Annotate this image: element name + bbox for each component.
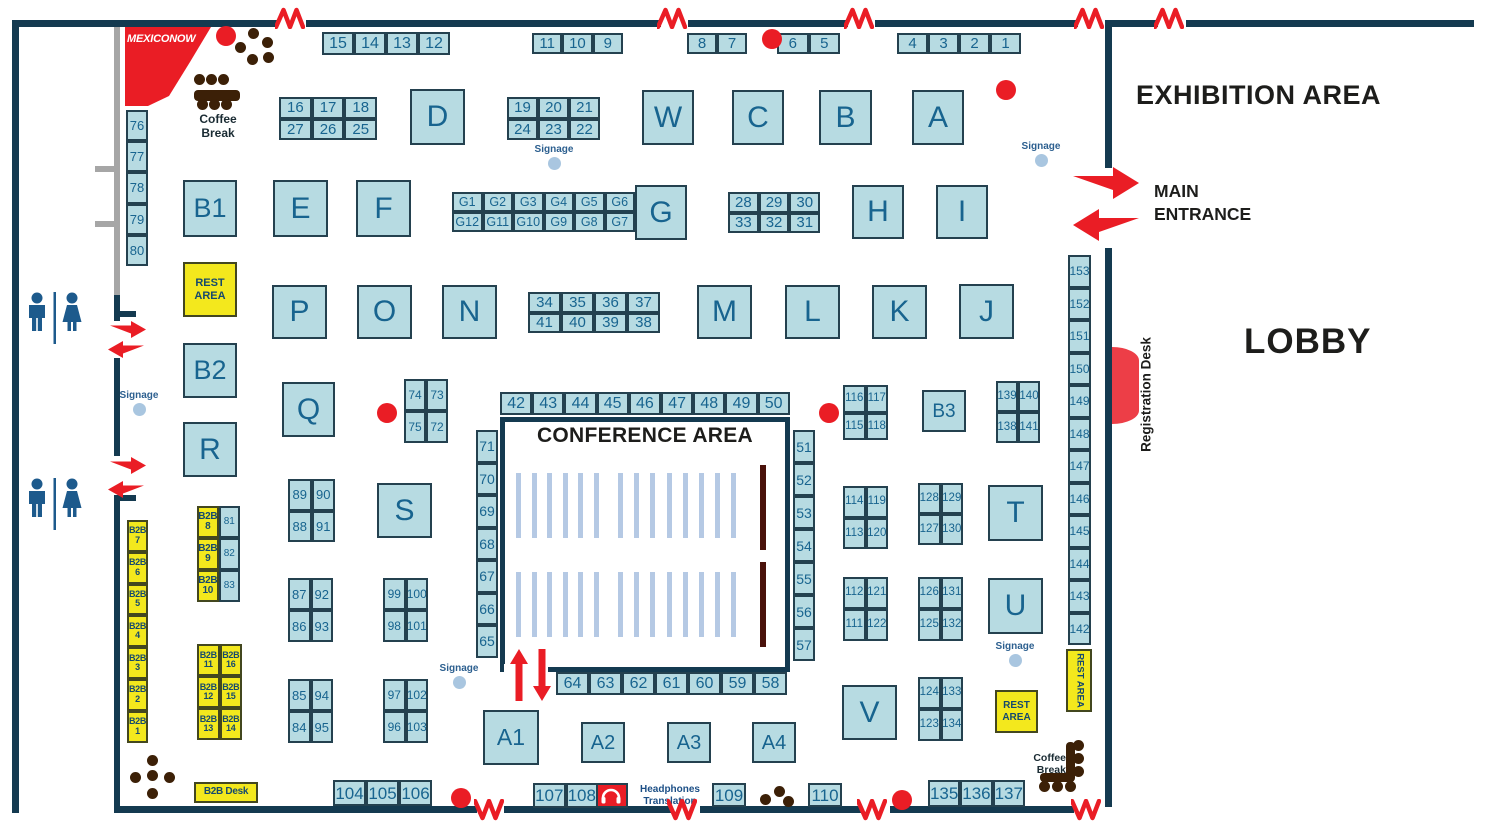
signage-text: Signage bbox=[440, 663, 479, 674]
registration-desk bbox=[1112, 347, 1139, 424]
booth-57[interactable]: 57 bbox=[793, 628, 815, 661]
b2b-desk[interactable]: B2B Desk bbox=[194, 782, 258, 803]
booth-52[interactable]: 52 bbox=[793, 463, 815, 496]
booth-L[interactable]: L bbox=[785, 285, 840, 339]
wall-segment bbox=[114, 295, 120, 321]
booth-A1[interactable]: A1 bbox=[483, 710, 539, 765]
wall-segment bbox=[1186, 20, 1474, 27]
booth-150[interactable]: 150 bbox=[1068, 353, 1091, 386]
coffee-dot bbox=[218, 74, 229, 85]
booth-Q[interactable]: Q bbox=[282, 382, 335, 437]
booth-127[interactable]: 127 bbox=[918, 514, 941, 545]
booth-124[interactable]: 124 bbox=[918, 677, 941, 709]
booth-111[interactable]: 111 bbox=[843, 609, 866, 641]
booth-19[interactable]: 19 bbox=[507, 97, 538, 119]
seat-row-bar bbox=[532, 572, 537, 637]
booth-141[interactable]: 141 bbox=[1018, 412, 1040, 443]
coffee-dot bbox=[194, 74, 205, 85]
booth-34[interactable]: 34 bbox=[528, 292, 561, 313]
booth-92[interactable]: 92 bbox=[311, 578, 334, 610]
booth-39[interactable]: 39 bbox=[594, 313, 627, 334]
booth-14[interactable]: 14 bbox=[354, 32, 386, 55]
booth-27[interactable]: 27 bbox=[279, 119, 312, 141]
wall-segment bbox=[875, 20, 1078, 27]
out-arrow-icon bbox=[108, 341, 144, 363]
booth-G10[interactable]: G10 bbox=[513, 212, 544, 232]
mexiconow-logo-text: MEXICONOW bbox=[127, 33, 209, 45]
coffee-dot bbox=[235, 42, 246, 53]
booth-70[interactable]: 70 bbox=[476, 463, 498, 496]
booth-98[interactable]: 98 bbox=[383, 610, 406, 642]
coffee-dot bbox=[206, 74, 217, 85]
signage-marker: Signage bbox=[992, 641, 1038, 667]
booth-84[interactable]: 84 bbox=[288, 711, 311, 743]
booth-108[interactable]: 108 bbox=[566, 783, 599, 808]
seat-row-bar bbox=[532, 473, 537, 538]
wall-break-icon bbox=[857, 799, 887, 825]
booth-11[interactable]: 11 bbox=[532, 33, 562, 54]
restroom-icon bbox=[24, 476, 86, 537]
booth-48[interactable]: 48 bbox=[693, 392, 725, 415]
booth-83[interactable]: 83 bbox=[219, 570, 241, 602]
in-arrow-icon bbox=[110, 321, 146, 343]
signage-dot bbox=[1035, 154, 1048, 167]
booth-35[interactable]: 35 bbox=[561, 292, 594, 313]
booth-V[interactable]: V bbox=[842, 685, 897, 740]
booth-B2B-9[interactable]: B2B 9 bbox=[197, 538, 219, 570]
booth-H[interactable]: H bbox=[852, 185, 904, 239]
booth-75[interactable]: 75 bbox=[404, 411, 426, 443]
booth-81[interactable]: 81 bbox=[219, 506, 241, 538]
seat-row-bar bbox=[650, 572, 655, 637]
booth-8[interactable]: 8 bbox=[687, 33, 717, 54]
booth-116[interactable]: 116 bbox=[843, 385, 866, 413]
booth-G9[interactable]: G9 bbox=[544, 212, 575, 232]
booth-G5[interactable]: G5 bbox=[574, 192, 605, 212]
booth-120[interactable]: 120 bbox=[866, 518, 889, 550]
booth-28[interactable]: 28 bbox=[728, 192, 759, 213]
seat-row-bar bbox=[516, 473, 521, 538]
booth-G3[interactable]: G3 bbox=[513, 192, 544, 212]
booth-F[interactable]: F bbox=[356, 180, 411, 237]
booth-D[interactable]: D bbox=[410, 89, 465, 145]
corridor-line bbox=[95, 166, 115, 172]
booth-23[interactable]: 23 bbox=[538, 119, 569, 141]
seat-row-bar bbox=[699, 572, 704, 637]
booth-45[interactable]: 45 bbox=[597, 392, 629, 415]
booth-15[interactable]: 15 bbox=[322, 32, 354, 55]
booth-100[interactable]: 100 bbox=[406, 578, 429, 610]
booth-88[interactable]: 88 bbox=[288, 511, 312, 543]
signage-text: Signage bbox=[535, 144, 574, 155]
booth-32[interactable]: 32 bbox=[759, 213, 790, 234]
booth-B2B-3[interactable]: B2B 3 bbox=[127, 647, 148, 679]
booth-A4[interactable]: A4 bbox=[752, 722, 796, 763]
booth-A[interactable]: A bbox=[912, 90, 964, 145]
coffee-dot bbox=[1073, 753, 1084, 764]
booth-44[interactable]: 44 bbox=[564, 392, 596, 415]
booth-B2B-6[interactable]: B2B 6 bbox=[127, 552, 148, 584]
booth-43[interactable]: 43 bbox=[532, 392, 564, 415]
booth-B2B-7[interactable]: B2B 7 bbox=[127, 520, 148, 552]
booth-37[interactable]: 37 bbox=[627, 292, 660, 313]
booth-85[interactable]: 85 bbox=[288, 679, 311, 711]
coffee-dot bbox=[262, 37, 273, 48]
booth-G2[interactable]: G2 bbox=[483, 192, 514, 212]
booth-62[interactable]: 62 bbox=[622, 672, 655, 695]
seat-row-bar bbox=[547, 572, 552, 637]
booth-C[interactable]: C bbox=[732, 90, 784, 145]
entrance-out-arrow-icon bbox=[1073, 209, 1139, 246]
booth-A2[interactable]: A2 bbox=[581, 722, 625, 763]
booth-105[interactable]: 105 bbox=[366, 780, 399, 806]
booth-82[interactable]: 82 bbox=[219, 538, 241, 570]
booth-102[interactable]: 102 bbox=[406, 679, 429, 711]
booth-N[interactable]: N bbox=[442, 285, 497, 339]
booth-133[interactable]: 133 bbox=[941, 677, 964, 709]
wall-segment bbox=[890, 806, 1074, 813]
booth-10[interactable]: 10 bbox=[562, 33, 592, 54]
lobby-label: LOBBY bbox=[1244, 322, 1372, 362]
booth-49[interactable]: 49 bbox=[725, 392, 757, 415]
wall-segment bbox=[114, 806, 477, 813]
coffee-dot bbox=[197, 99, 208, 110]
seat-row-bar bbox=[650, 473, 655, 538]
booth-104[interactable]: 104 bbox=[333, 780, 366, 806]
booth-5[interactable]: 5 bbox=[809, 33, 841, 54]
booth-107[interactable]: 107 bbox=[533, 783, 566, 808]
booth-147[interactable]: 147 bbox=[1068, 450, 1091, 483]
coffee-dot bbox=[164, 772, 175, 783]
booth-118[interactable]: 118 bbox=[866, 413, 889, 441]
booth-117[interactable]: 117 bbox=[866, 385, 889, 413]
coffee-dot bbox=[1039, 781, 1050, 792]
booth-M[interactable]: M bbox=[697, 285, 752, 339]
booth-B[interactable]: B bbox=[819, 90, 872, 145]
seat-row-bar bbox=[594, 473, 599, 538]
booth-P[interactable]: P bbox=[272, 285, 327, 339]
booth-B1[interactable]: B1 bbox=[183, 180, 237, 237]
headphones-cell bbox=[594, 783, 628, 808]
booth-7[interactable]: 7 bbox=[717, 33, 747, 54]
wall-break-icon bbox=[667, 799, 697, 825]
booth-69[interactable]: 69 bbox=[476, 495, 498, 528]
signage-text: Signage bbox=[1022, 141, 1061, 152]
rest-area-vertical-label: REST AREA bbox=[1074, 653, 1085, 708]
wall-segment bbox=[114, 495, 120, 813]
booth-B2B-8[interactable]: B2B 8 bbox=[197, 506, 219, 538]
booth-4[interactable]: 4 bbox=[897, 33, 928, 54]
booth-12[interactable]: 12 bbox=[418, 32, 450, 55]
seat-row-bar bbox=[715, 473, 720, 538]
booth-153[interactable]: 153 bbox=[1068, 255, 1091, 288]
booth-106[interactable]: 106 bbox=[399, 780, 432, 806]
booth-G[interactable]: G bbox=[635, 185, 687, 240]
booth-E[interactable]: E bbox=[273, 180, 328, 237]
booth-B3[interactable]: B3 bbox=[922, 390, 966, 432]
booth-50[interactable]: 50 bbox=[758, 392, 790, 415]
booth-129[interactable]: 129 bbox=[941, 483, 964, 514]
red-dot-marker bbox=[377, 403, 397, 423]
booth-148[interactable]: 148 bbox=[1068, 418, 1091, 451]
booth-132[interactable]: 132 bbox=[941, 609, 964, 641]
booth-R[interactable]: R bbox=[183, 422, 237, 477]
booth-T[interactable]: T bbox=[988, 485, 1043, 541]
booth-119[interactable]: 119 bbox=[866, 486, 889, 518]
booth-134[interactable]: 134 bbox=[941, 709, 964, 741]
booth-47[interactable]: 47 bbox=[661, 392, 693, 415]
booth-51[interactable]: 51 bbox=[793, 430, 815, 463]
entrance-in-arrow-icon bbox=[1073, 167, 1139, 204]
booth-60[interactable]: 60 bbox=[688, 672, 721, 695]
booth-J[interactable]: J bbox=[959, 284, 1014, 339]
booth-53[interactable]: 53 bbox=[793, 496, 815, 529]
booth-142[interactable]: 142 bbox=[1068, 613, 1091, 646]
booth-72[interactable]: 72 bbox=[426, 411, 448, 443]
booth-110[interactable]: 110 bbox=[808, 783, 842, 807]
booth-95[interactable]: 95 bbox=[311, 711, 334, 743]
booth-G4[interactable]: G4 bbox=[544, 192, 575, 212]
booth-17[interactable]: 17 bbox=[312, 97, 345, 119]
wall-segment bbox=[114, 311, 136, 317]
booth-46[interactable]: 46 bbox=[629, 392, 661, 415]
booth-K[interactable]: K bbox=[872, 285, 927, 339]
wall-break-icon bbox=[275, 7, 305, 34]
booth-20[interactable]: 20 bbox=[538, 97, 569, 119]
booth-A3[interactable]: A3 bbox=[667, 722, 711, 763]
booth-29[interactable]: 29 bbox=[759, 192, 790, 213]
booth-152[interactable]: 152 bbox=[1068, 288, 1091, 321]
booth-113[interactable]: 113 bbox=[843, 518, 866, 550]
red-dot-marker bbox=[762, 29, 782, 49]
coffee-dot bbox=[1065, 781, 1076, 792]
coffee-dot bbox=[1052, 781, 1063, 792]
booth-I[interactable]: I bbox=[936, 185, 988, 239]
booth-61[interactable]: 61 bbox=[655, 672, 688, 695]
booth-B2B-1[interactable]: B2B 1 bbox=[127, 711, 148, 743]
corridor-line bbox=[95, 221, 115, 227]
booth-18[interactable]: 18 bbox=[344, 97, 377, 119]
conference-out-arrow-icon bbox=[533, 649, 551, 706]
signage-dot bbox=[453, 676, 466, 689]
seat-row-bar bbox=[715, 572, 720, 637]
booth-145[interactable]: 145 bbox=[1068, 515, 1091, 548]
booth-13[interactable]: 13 bbox=[386, 32, 418, 55]
booth-22[interactable]: 22 bbox=[569, 119, 600, 141]
booth-146[interactable]: 146 bbox=[1068, 483, 1091, 516]
booth-B2[interactable]: B2 bbox=[183, 343, 237, 398]
booth-121[interactable]: 121 bbox=[866, 577, 889, 609]
signage-dot bbox=[1009, 654, 1022, 667]
booth-21[interactable]: 21 bbox=[569, 97, 600, 119]
seat-row-bar bbox=[731, 473, 736, 538]
booth-138[interactable]: 138 bbox=[996, 412, 1018, 443]
booth-73[interactable]: 73 bbox=[426, 379, 448, 411]
booth-64[interactable]: 64 bbox=[556, 672, 589, 695]
booth-33[interactable]: 33 bbox=[728, 213, 759, 234]
booth-89[interactable]: 89 bbox=[288, 479, 312, 511]
booth-66[interactable]: 66 bbox=[476, 593, 498, 626]
seat-row-bar bbox=[731, 572, 736, 637]
booth-143[interactable]: 143 bbox=[1068, 580, 1091, 613]
booth-G11[interactable]: G11 bbox=[483, 212, 514, 232]
signage-text: Signage bbox=[996, 641, 1035, 652]
booth-87[interactable]: 87 bbox=[288, 578, 311, 610]
booth-123[interactable]: 123 bbox=[918, 709, 941, 741]
booth-80[interactable]: 80 bbox=[126, 235, 148, 266]
booth-94[interactable]: 94 bbox=[311, 679, 334, 711]
booth-77[interactable]: 77 bbox=[126, 141, 148, 172]
booth-91[interactable]: 91 bbox=[312, 511, 336, 543]
booth-38[interactable]: 38 bbox=[627, 313, 660, 334]
coffee-dot bbox=[221, 99, 232, 110]
wall-segment bbox=[1105, 248, 1112, 807]
booth-103[interactable]: 103 bbox=[406, 711, 429, 743]
booth-B2B-15[interactable]: B2B 15 bbox=[220, 676, 243, 708]
booth-36[interactable]: 36 bbox=[594, 292, 627, 313]
booth-135[interactable]: 135 bbox=[928, 780, 960, 807]
coffee-dot bbox=[1073, 766, 1084, 777]
coffee-dot bbox=[760, 794, 771, 805]
red-dot-marker bbox=[216, 26, 236, 46]
booth-B2B-2[interactable]: B2B 2 bbox=[127, 679, 148, 711]
red-dot-marker bbox=[892, 790, 912, 810]
booth-S[interactable]: S bbox=[377, 483, 432, 538]
wall-segment bbox=[12, 20, 19, 813]
conference-area-label: CONFERENCE AREA bbox=[500, 424, 790, 448]
red-dot-marker bbox=[451, 788, 471, 808]
signage-marker: Signage bbox=[436, 663, 482, 689]
booth-G1[interactable]: G1 bbox=[452, 192, 483, 212]
booth-9[interactable]: 9 bbox=[593, 33, 623, 54]
booth-126[interactable]: 126 bbox=[918, 577, 941, 609]
seat-row-bar bbox=[634, 473, 639, 538]
booth-40[interactable]: 40 bbox=[561, 313, 594, 334]
booth-130[interactable]: 130 bbox=[941, 514, 964, 545]
booth-71[interactable]: 71 bbox=[476, 430, 498, 463]
podium-bar bbox=[760, 465, 766, 550]
booth-90[interactable]: 90 bbox=[312, 479, 336, 511]
rest-area: REST AREA bbox=[183, 262, 237, 317]
booth-78[interactable]: 78 bbox=[126, 172, 148, 203]
booth-55[interactable]: 55 bbox=[793, 562, 815, 595]
booth-54[interactable]: 54 bbox=[793, 529, 815, 562]
booth-59[interactable]: 59 bbox=[721, 672, 754, 695]
booth-U[interactable]: U bbox=[988, 578, 1043, 634]
booth-97[interactable]: 97 bbox=[383, 679, 406, 711]
exhibition-area-label: EXHIBITION AREA bbox=[1136, 80, 1381, 111]
booth-93[interactable]: 93 bbox=[311, 610, 334, 642]
booth-3[interactable]: 3 bbox=[928, 33, 959, 54]
booth-68[interactable]: 68 bbox=[476, 528, 498, 561]
booth-56[interactable]: 56 bbox=[793, 595, 815, 628]
booth-101[interactable]: 101 bbox=[406, 610, 429, 642]
booth-30[interactable]: 30 bbox=[789, 192, 820, 213]
coffee-dot bbox=[774, 786, 785, 797]
booth-2[interactable]: 2 bbox=[959, 33, 990, 54]
booth-74[interactable]: 74 bbox=[404, 379, 426, 411]
booth-B2B-16[interactable]: B2B 16 bbox=[220, 644, 243, 676]
wall-break-icon bbox=[474, 799, 504, 825]
booth-109[interactable]: 109 bbox=[712, 783, 746, 807]
booth-112[interactable]: 112 bbox=[843, 577, 866, 609]
booth-B2B-12[interactable]: B2B 12 bbox=[197, 676, 220, 708]
booth-131[interactable]: 131 bbox=[941, 577, 964, 609]
out-arrow-icon bbox=[108, 481, 144, 503]
booth-G7[interactable]: G7 bbox=[605, 212, 636, 232]
red-dot-marker bbox=[996, 80, 1016, 100]
booth-115[interactable]: 115 bbox=[843, 413, 866, 441]
conference-area bbox=[500, 417, 790, 672]
booth-63[interactable]: 63 bbox=[589, 672, 622, 695]
booth-41[interactable]: 41 bbox=[528, 313, 561, 334]
booth-128[interactable]: 128 bbox=[918, 483, 941, 514]
booth-25[interactable]: 25 bbox=[344, 119, 377, 141]
booth-B2B-4[interactable]: B2B 4 bbox=[127, 615, 148, 647]
wall-break-icon bbox=[1071, 799, 1101, 825]
coffee-dot bbox=[263, 52, 274, 63]
booth-144[interactable]: 144 bbox=[1068, 548, 1091, 581]
booth-58[interactable]: 58 bbox=[754, 672, 787, 695]
booth-79[interactable]: 79 bbox=[126, 204, 148, 235]
headphones-icon bbox=[600, 787, 622, 804]
booth-24[interactable]: 24 bbox=[507, 119, 538, 141]
booth-67[interactable]: 67 bbox=[476, 560, 498, 593]
booth-G8[interactable]: G8 bbox=[574, 212, 605, 232]
booth-125[interactable]: 125 bbox=[918, 609, 941, 641]
booth-31[interactable]: 31 bbox=[789, 213, 820, 234]
wall-segment bbox=[700, 806, 861, 813]
booth-136[interactable]: 136 bbox=[960, 780, 992, 807]
booth-149[interactable]: 149 bbox=[1068, 385, 1091, 418]
booth-B2B-5[interactable]: B2B 5 bbox=[127, 584, 148, 616]
seat-row-bar bbox=[683, 572, 688, 637]
booth-G6[interactable]: G6 bbox=[605, 192, 636, 212]
booth-B2B-13[interactable]: B2B 13 bbox=[197, 708, 220, 740]
coffee-dot bbox=[247, 54, 258, 65]
booth-26[interactable]: 26 bbox=[312, 119, 345, 141]
coffee-dot bbox=[147, 755, 158, 766]
booth-151[interactable]: 151 bbox=[1068, 320, 1091, 353]
booth-137[interactable]: 137 bbox=[993, 780, 1025, 807]
booth-99[interactable]: 99 bbox=[383, 578, 406, 610]
booth-1[interactable]: 1 bbox=[990, 33, 1021, 54]
booth-B2B-14[interactable]: B2B 14 bbox=[220, 708, 243, 740]
wall-segment bbox=[1105, 20, 1112, 168]
booth-96[interactable]: 96 bbox=[383, 711, 406, 743]
booth-B2B-10[interactable]: B2B 10 bbox=[197, 570, 219, 602]
booth-140[interactable]: 140 bbox=[1018, 381, 1040, 412]
registration-desk-label: Registration Desk bbox=[1139, 315, 1154, 475]
booth-42[interactable]: 42 bbox=[500, 392, 532, 415]
seat-row-bar bbox=[683, 473, 688, 538]
booth-114[interactable]: 114 bbox=[843, 486, 866, 518]
booth-139[interactable]: 139 bbox=[996, 381, 1018, 412]
seat-row-bar bbox=[578, 473, 583, 538]
booth-86[interactable]: 86 bbox=[288, 610, 311, 642]
booth-16[interactable]: 16 bbox=[279, 97, 312, 119]
booth-G12[interactable]: G12 bbox=[452, 212, 483, 232]
coffee-dot bbox=[147, 770, 158, 781]
booth-O[interactable]: O bbox=[357, 285, 412, 339]
wall-break-icon bbox=[1074, 7, 1104, 34]
exhibition-floor-plan: CONFERENCE AREA EXHIBITION AREA LOBBY MA… bbox=[0, 0, 1500, 825]
podium-bar bbox=[760, 562, 766, 647]
booth-W[interactable]: W bbox=[642, 90, 694, 145]
booth-122[interactable]: 122 bbox=[866, 609, 889, 641]
booth-B2B-11[interactable]: B2B 11 bbox=[197, 644, 220, 676]
booth-65[interactable]: 65 bbox=[476, 625, 498, 658]
